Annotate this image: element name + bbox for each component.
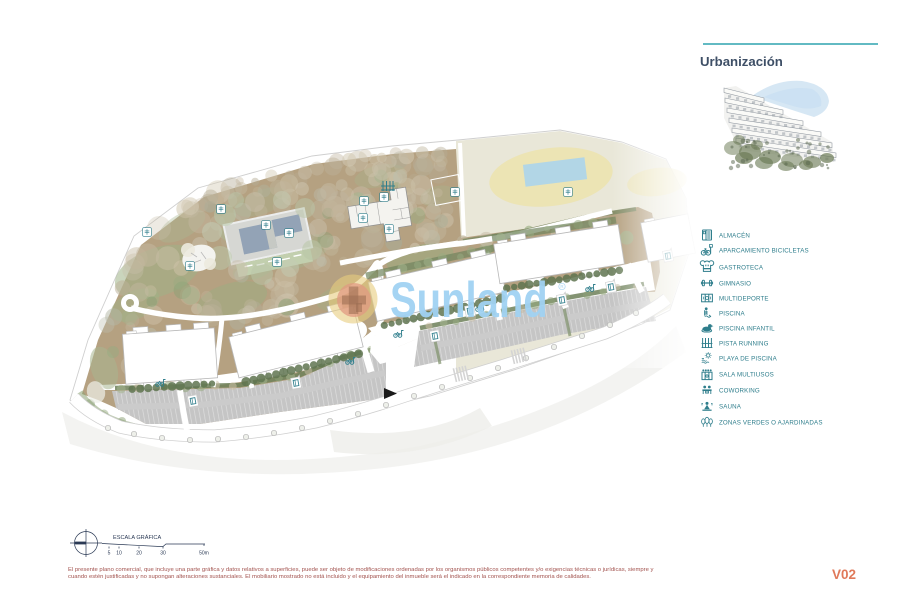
svg-text:10: 10 xyxy=(116,551,122,557)
svg-text:ESCALA GRÁFICA: ESCALA GRÁFICA xyxy=(113,534,161,541)
svg-text:5: 5 xyxy=(108,551,111,557)
svg-text:GASTROTECA: GASTROTECA xyxy=(719,264,764,271)
svg-text:50m: 50m xyxy=(199,551,209,557)
svg-text:El presente plano comercial, q: El presente plano comercial, que incluye… xyxy=(68,567,654,573)
svg-text:30: 30 xyxy=(160,551,166,557)
svg-text:Urbanización: Urbanización xyxy=(700,54,783,69)
svg-text:20: 20 xyxy=(136,551,142,557)
svg-text:MULTIDEPORTE: MULTIDEPORTE xyxy=(719,295,769,302)
svg-text:ZONAS VERDES O AJARDINADAS: ZONAS VERDES O AJARDINADAS xyxy=(719,419,823,426)
svg-text:PLAYA DE PISCINA: PLAYA DE PISCINA xyxy=(719,355,778,362)
svg-text:COWORKING: COWORKING xyxy=(719,387,760,394)
svg-text:Sunland: Sunland xyxy=(390,272,548,328)
svg-text:SALA MULTIUSOS: SALA MULTIUSOS xyxy=(719,371,774,378)
svg-text:V02: V02 xyxy=(832,567,856,582)
svg-text:SAUNA: SAUNA xyxy=(719,403,742,410)
svg-text:ALMACÉN: ALMACÉN xyxy=(719,232,750,239)
svg-text:GIMNASIO: GIMNASIO xyxy=(719,280,751,287)
svg-text:R: R xyxy=(560,284,563,289)
svg-text:PISCINA: PISCINA xyxy=(719,310,746,317)
svg-text:cuando estén justificadas y no: cuando estén justificadas y no supongan … xyxy=(68,574,591,580)
svg-text:PISCINA INFANTIL: PISCINA INFANTIL xyxy=(719,325,775,332)
svg-text:APARCAMIENTO BICICLETAS: APARCAMIENTO BICICLETAS xyxy=(719,247,809,254)
svg-text:PISTA RUNNING: PISTA RUNNING xyxy=(719,340,769,347)
